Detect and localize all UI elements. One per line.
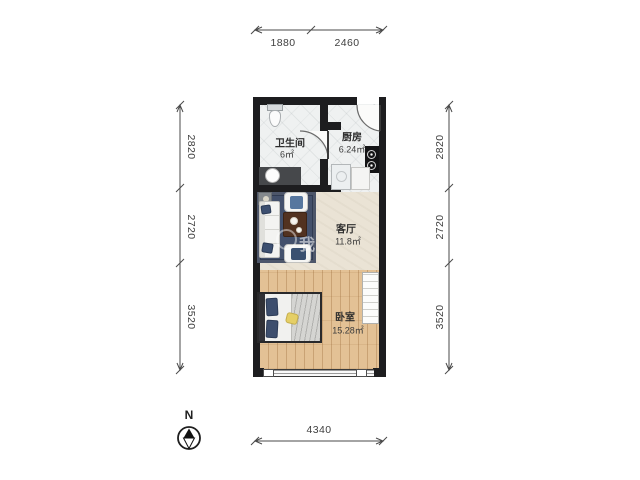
- stove-burner: [367, 150, 376, 159]
- room-label-kitchen: 厨房: [342, 129, 362, 144]
- dim-left-2: 2720: [185, 215, 197, 240]
- sofa-pillow: [260, 204, 271, 214]
- dim-top-2: 2460: [335, 37, 360, 49]
- counter-icon: [351, 167, 370, 190]
- dim-left-1: 2820: [185, 135, 197, 160]
- wall-kitchen-partition-upper: [320, 97, 328, 131]
- dim-right-1: 2820: [434, 135, 446, 160]
- wall-bottom-right-corner: [373, 368, 386, 377]
- armchair-icon: [284, 192, 308, 212]
- wall-top-right: [380, 97, 386, 105]
- window-frame-right: [356, 369, 367, 377]
- wall-right: [379, 97, 386, 377]
- sink-basin: [265, 168, 280, 183]
- north-label: N: [185, 408, 194, 422]
- dim-top-1: 1880: [271, 37, 296, 49]
- room-area-bathroom: 6㎡: [280, 148, 294, 161]
- dim-right-2: 2720: [434, 215, 446, 240]
- washer-drum: [336, 171, 347, 182]
- bed-pillow: [266, 320, 279, 339]
- bed-pillow: [266, 298, 279, 317]
- armchair-cushion: [290, 196, 303, 209]
- dim-left-3: 3520: [185, 305, 197, 330]
- room-label-bedroom: 卧室: [335, 309, 355, 324]
- wall-bathroom-bottom: [253, 185, 341, 192]
- room-area-bedroom: 15.28㎡: [332, 324, 364, 337]
- floorplan-canvas: 我: [0, 0, 640, 480]
- wall-kitchen-partition-stub: [328, 122, 341, 130]
- window-frame-left: [263, 369, 274, 377]
- plate: [290, 217, 298, 225]
- sink-icon: [259, 167, 301, 185]
- room-label-living: 客厅: [336, 221, 356, 236]
- compass-icon: [178, 427, 200, 449]
- room-area-kitchen: 6.24㎡: [339, 143, 366, 156]
- dim-right-3: 3520: [434, 305, 446, 330]
- sofa-pillow: [261, 242, 274, 254]
- watermark-ring: [276, 229, 297, 250]
- dim-bottom-1: 4340: [307, 424, 332, 436]
- watermark: 我: [299, 231, 315, 255]
- wardrobe-icon: [362, 272, 379, 324]
- bed-headboard: [259, 294, 265, 341]
- bed-icon: [257, 292, 322, 343]
- washing-machine-icon: [331, 164, 351, 190]
- room-area-living: 11.8㎡: [335, 235, 361, 248]
